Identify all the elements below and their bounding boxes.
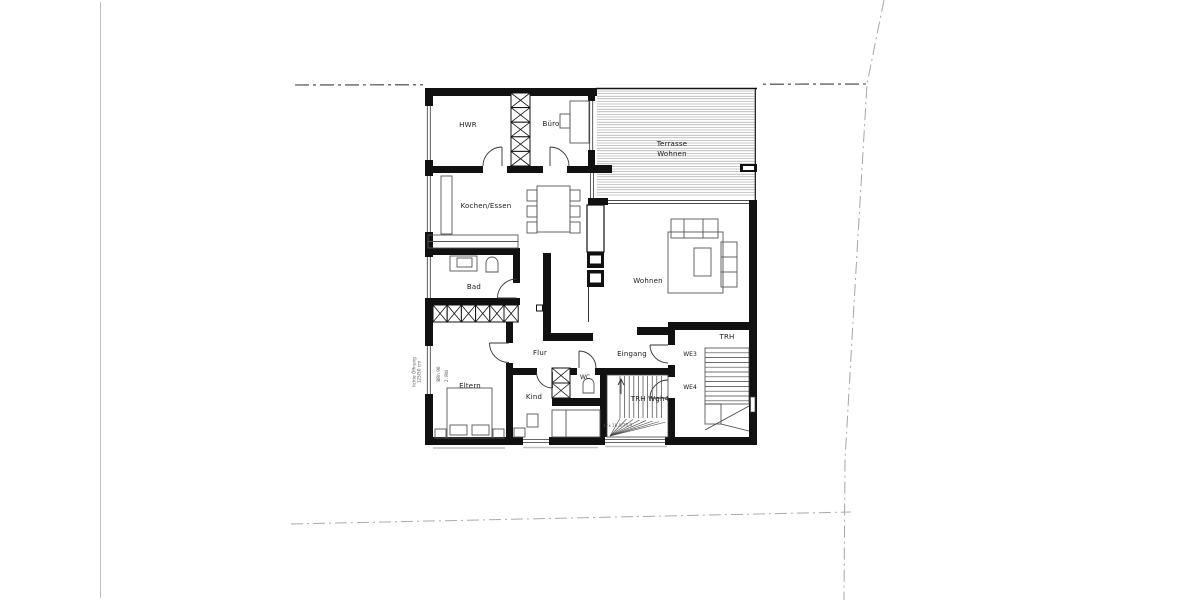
note-window-size: 125/50 cm	[417, 361, 422, 383]
room-label-we4: WE4	[683, 384, 697, 391]
note-parapet: BRh 90	[436, 366, 441, 381]
wall-mid-top	[507, 166, 543, 173]
window-kind	[523, 437, 549, 445]
window-bad	[425, 257, 433, 300]
room-label-terrasse-1: Terrasse	[656, 140, 688, 148]
boundary-bottom-dashdot	[291, 512, 851, 524]
wall-buero-kochen	[567, 166, 612, 173]
room-label-bad: Bad	[467, 283, 481, 291]
room-label-kochen-essen: Kochen/Essen	[461, 202, 512, 210]
wall-hall-kind-1	[513, 368, 537, 375]
wall-trh-left-1	[668, 322, 675, 345]
entrance-door-glazed	[605, 437, 665, 445]
room-label-hwr: HWR	[459, 121, 477, 129]
wall-trh-left-2	[668, 365, 675, 377]
window-kochen	[425, 176, 433, 232]
wall-trh-top	[668, 322, 757, 330]
room-label-eltern: Eltern	[459, 382, 481, 390]
glassdoor-end-block	[588, 198, 608, 205]
window-eltern	[425, 346, 433, 394]
wall-flur-hall-top	[543, 333, 593, 341]
eltern-closet	[433, 305, 518, 322]
wall-buero-terrace-top	[588, 96, 595, 101]
wall-bad-bottom	[425, 298, 515, 305]
wall-wc-bottom	[552, 398, 603, 406]
room-label-we3: WE3	[683, 351, 697, 358]
note-stair-dimensions: 17x 18,0/25,0	[603, 422, 633, 428]
wall-trh-left-3	[668, 398, 675, 437]
stair-handrail	[751, 397, 756, 412]
room-label-wc: WC	[580, 374, 590, 381]
room-label-buero: Büro	[542, 120, 559, 128]
wall-hwr-kochen	[433, 166, 483, 173]
room-label-eingang: Eingang	[617, 350, 647, 358]
terrace-stub-inset	[743, 166, 754, 170]
window-hwr	[425, 106, 433, 160]
room-label-trh: TRH	[718, 333, 734, 341]
wall-eltern-right-bottom	[506, 363, 513, 437]
wall-bad-right-top	[513, 248, 520, 283]
room-label-trh-wgh4: TRH Wgh4	[630, 395, 670, 403]
wall-flur-corridor	[543, 253, 551, 335]
room-label-terrasse-2: Wohnen	[657, 150, 687, 158]
room-label-wohnen: Wohnen	[633, 277, 663, 285]
shaft-hwr-buero	[511, 93, 530, 166]
boundary-right-dashdot	[844, 0, 884, 600]
wall-kochen-bad	[425, 248, 520, 255]
note-escape-route: 2. RW	[444, 370, 449, 382]
room-label-flur: Flur	[533, 349, 547, 357]
floor-plan-drawing: HWR Büro Terrasse Wohnen Kochen/Essen Wo…	[0, 0, 1200, 600]
wall-buero-terrace-bottom	[588, 150, 595, 166]
floor-plan-page: HWR Büro Terrasse Wohnen Kochen/Essen Wo…	[0, 0, 1200, 600]
room-label-kind: Kind	[526, 393, 542, 401]
shaft-wc	[552, 368, 570, 398]
